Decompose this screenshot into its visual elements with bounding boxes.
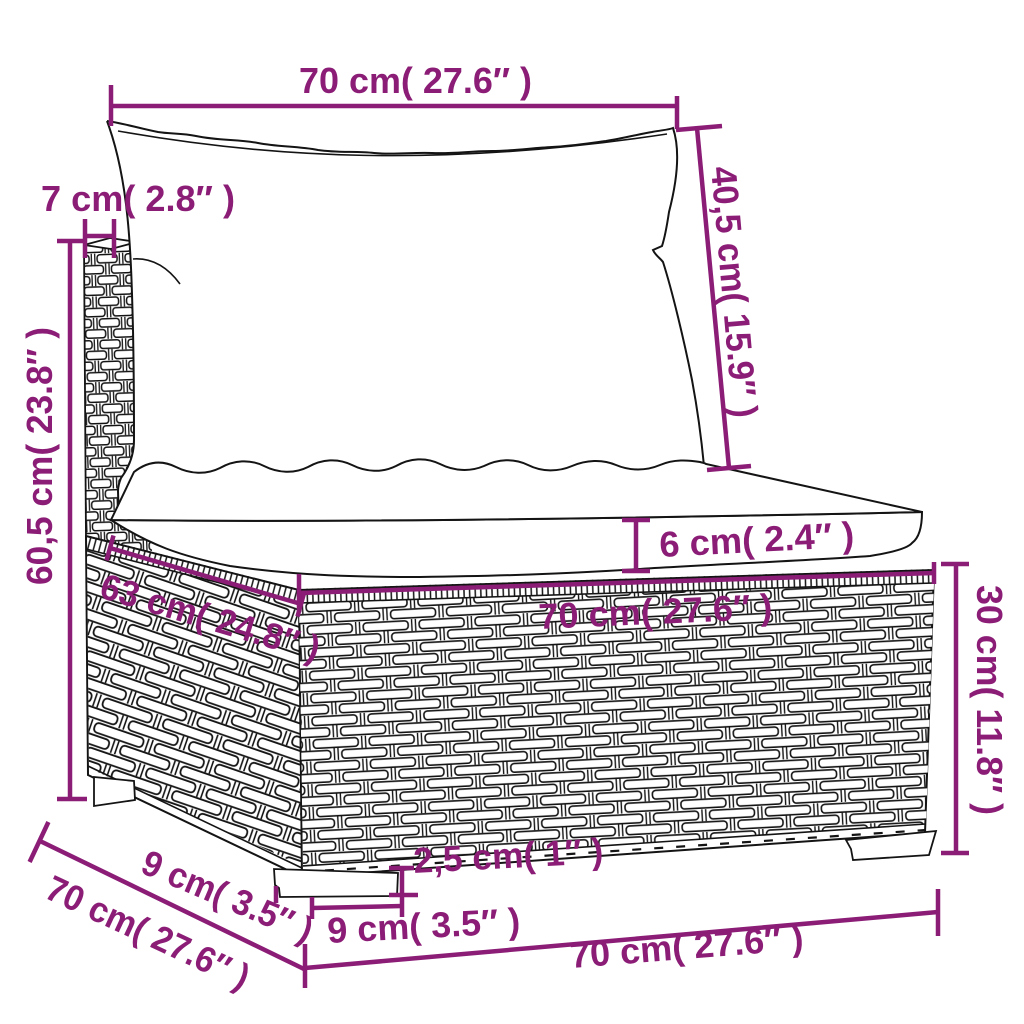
svg-text:70 cm( 27.6″ ): 70 cm( 27.6″ ) [299,60,532,101]
svg-text:30 cm( 11.8″ ): 30 cm( 11.8″ ) [969,585,1010,815]
svg-text:7 cm( 2.8″ ): 7 cm( 2.8″ ) [41,178,235,219]
svg-text:60,5 cm( 23.8″ ): 60,5 cm( 23.8″ ) [19,327,60,585]
